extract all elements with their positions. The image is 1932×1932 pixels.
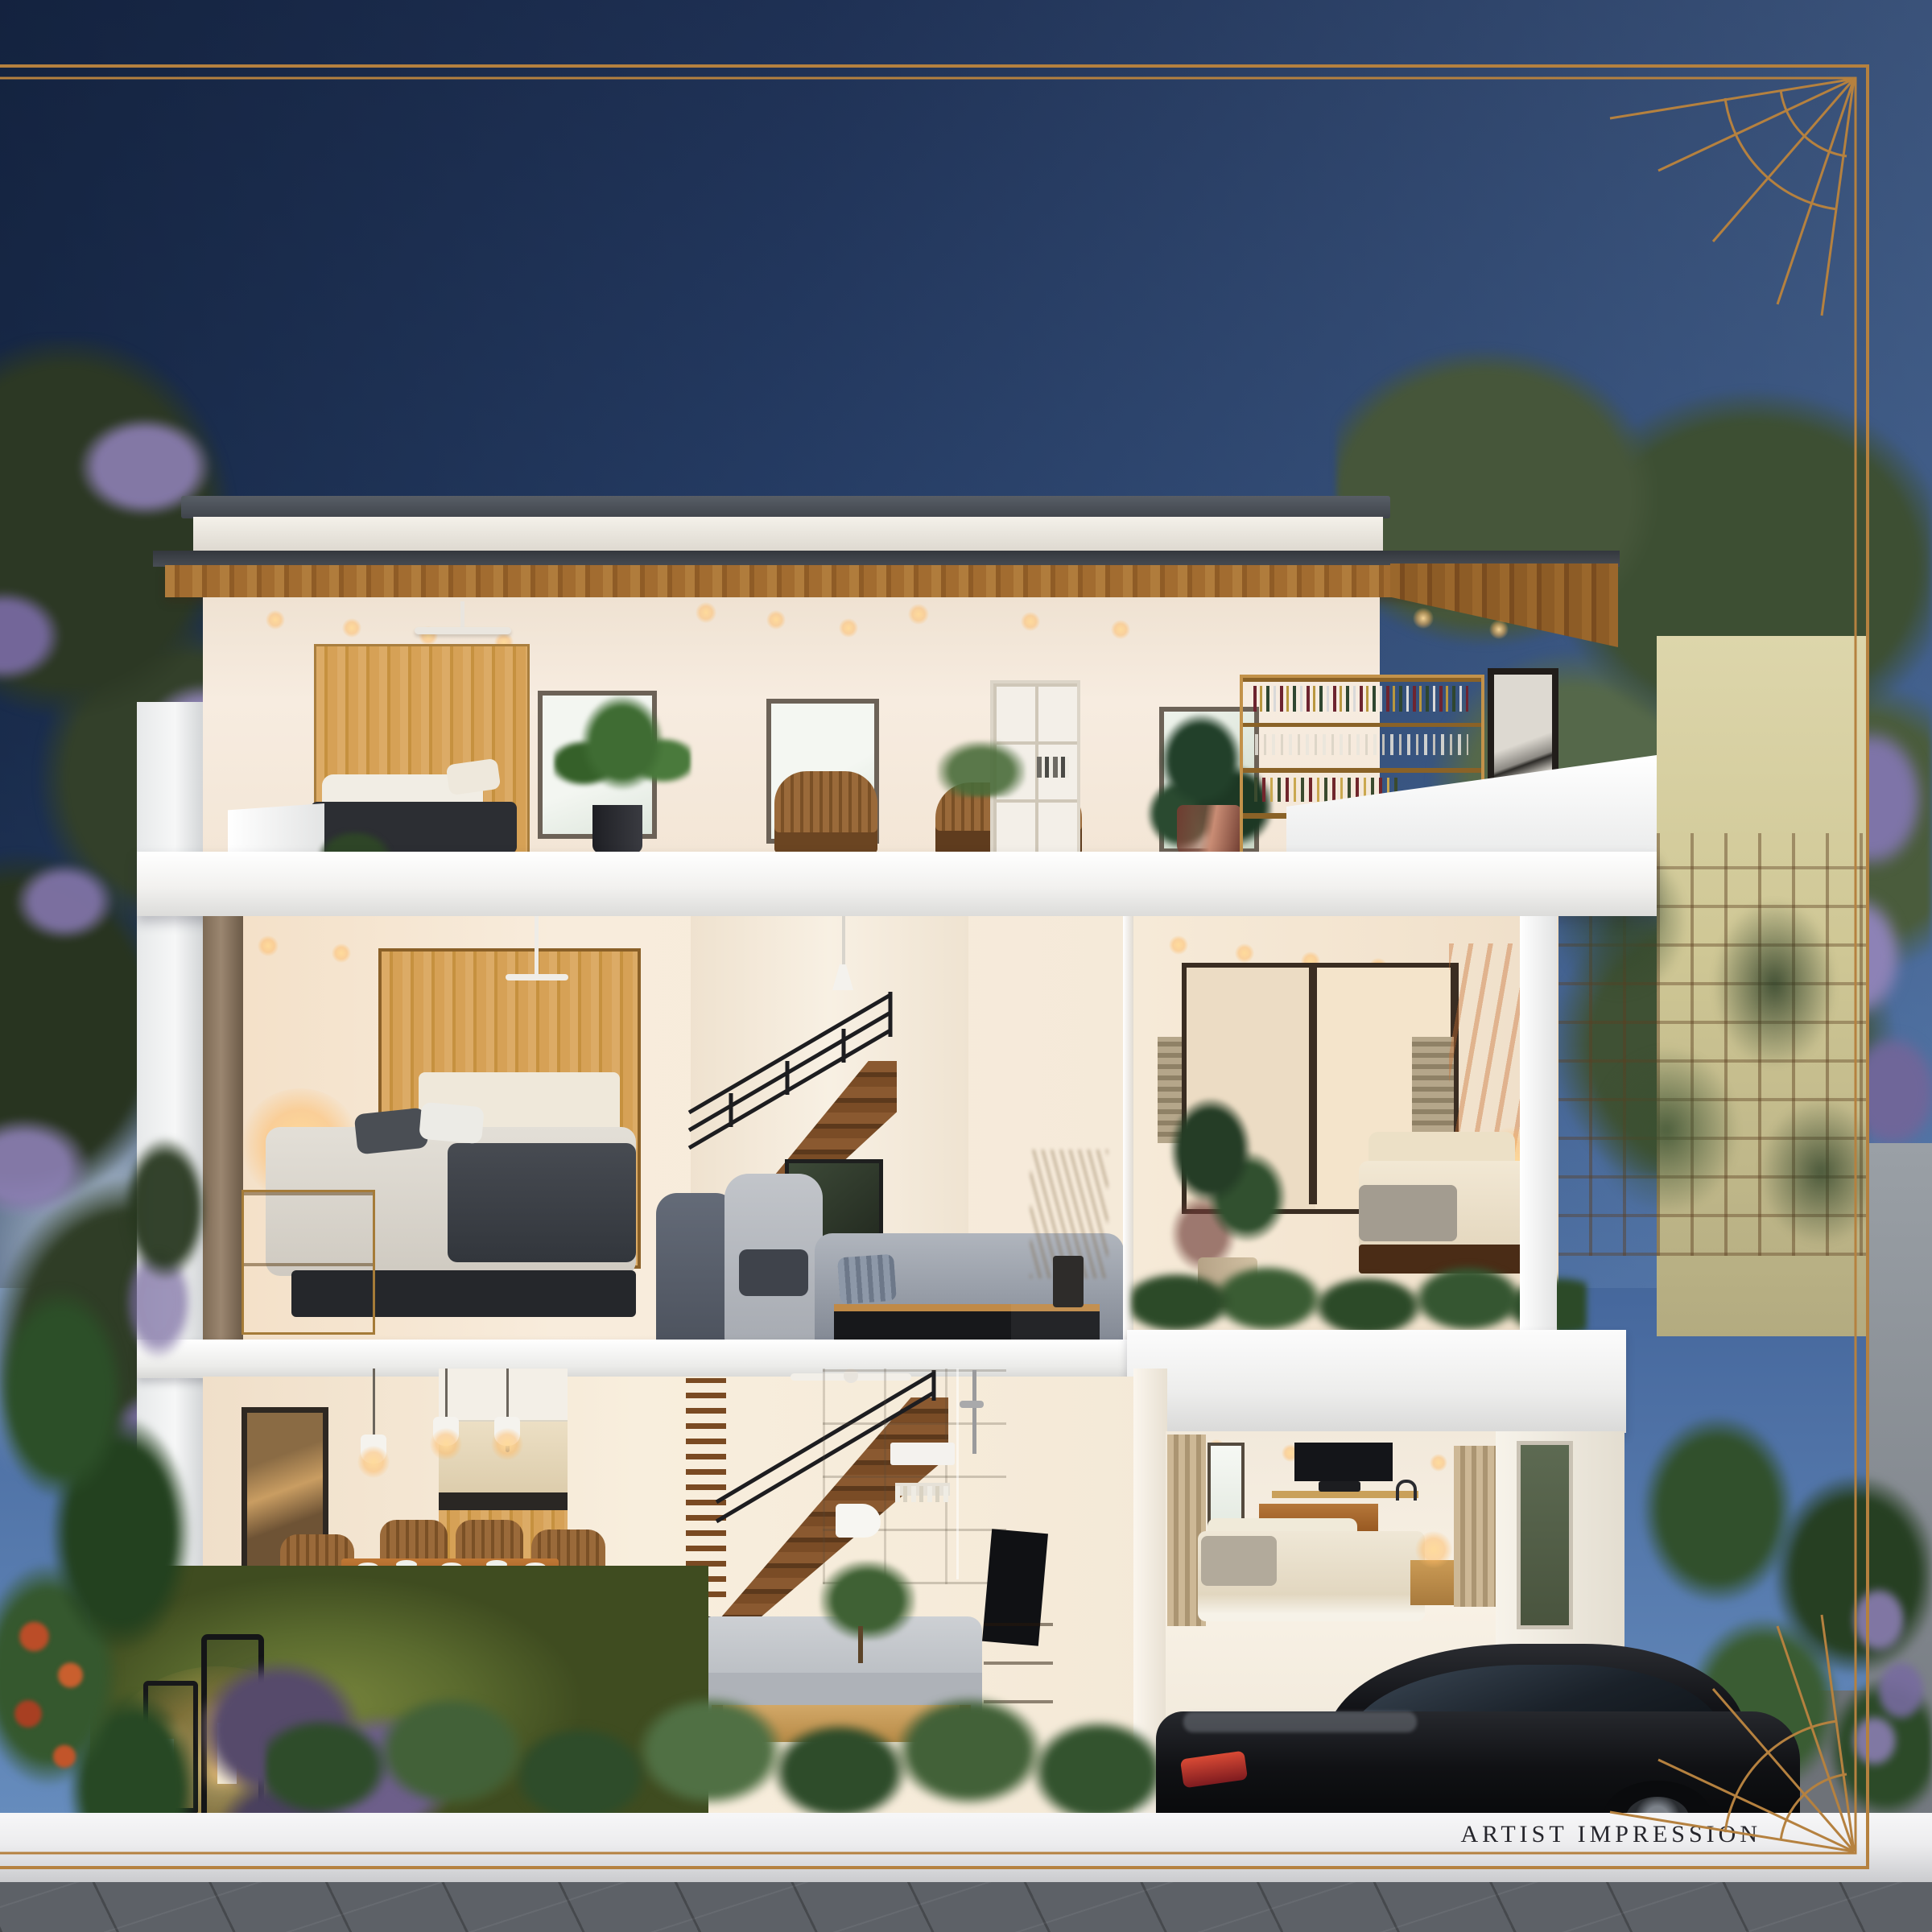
corner-ornament-top-right [1610, 79, 1854, 316]
gold-frame [0, 0, 1932, 1932]
artist-impression-render: ARTIST IMPRESSION [0, 0, 1932, 1932]
corner-ornament-bottom-right [1610, 1615, 1854, 1851]
